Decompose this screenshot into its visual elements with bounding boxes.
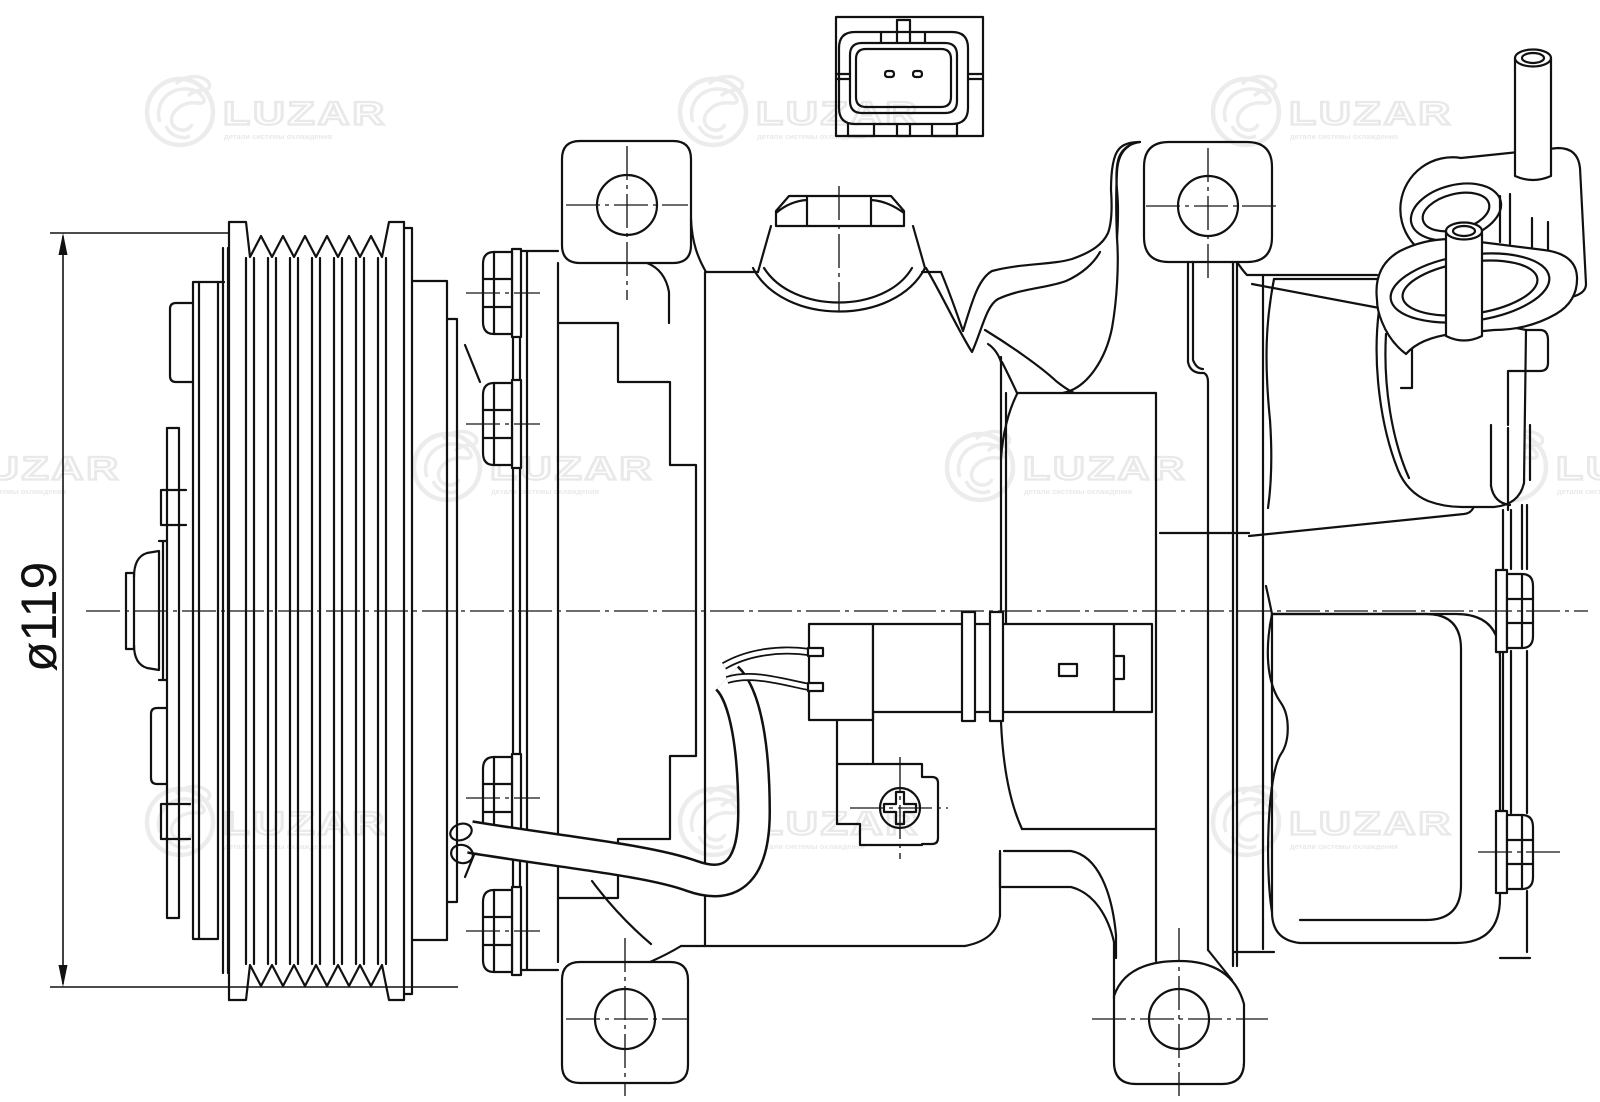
svg-text:ø119: ø119 — [11, 562, 67, 672]
